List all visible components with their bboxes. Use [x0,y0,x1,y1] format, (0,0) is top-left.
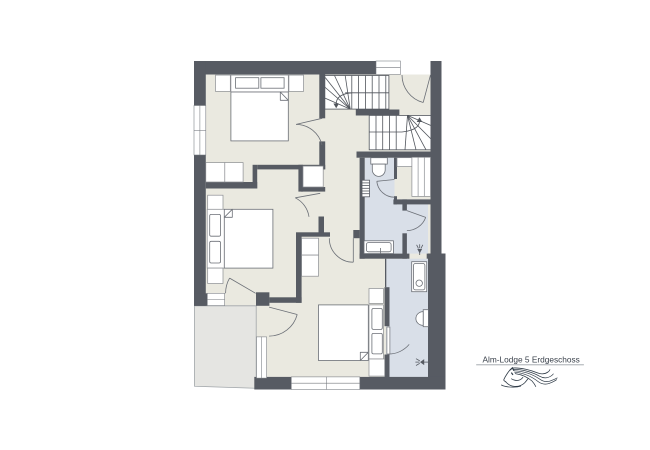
svg-text:Alm-Lodge 5 Erdgeschoss: Alm-Lodge 5 Erdgeschoss [483,355,580,365]
